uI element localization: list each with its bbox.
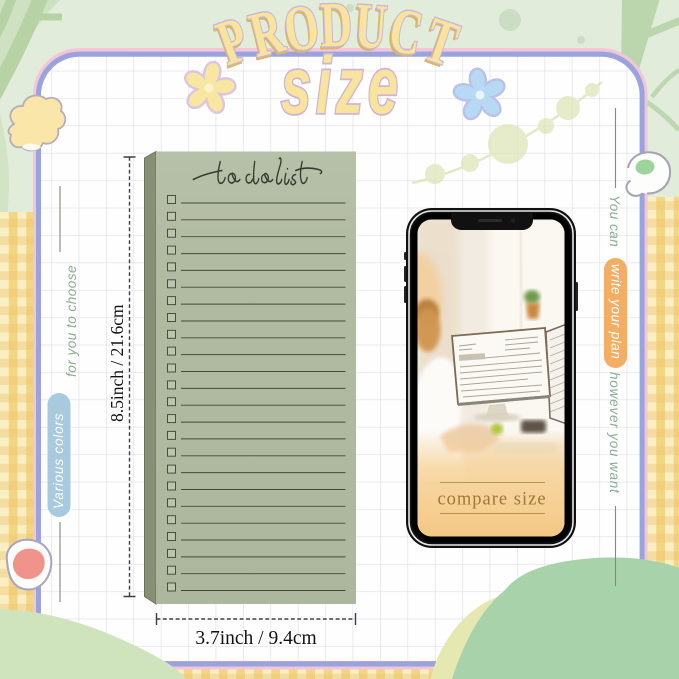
- svg-text:8.5inch / 21.6cm: 8.5inch / 21.6cm: [107, 304, 127, 422]
- svg-text:size: size: [281, 40, 403, 131]
- svg-text:You can: You can: [607, 195, 622, 247]
- svg-text:Various colors: Various colors: [51, 413, 66, 509]
- svg-text:for you to choose: for you to choose: [64, 265, 79, 377]
- svg-text:however you want: however you want: [607, 372, 622, 494]
- svg-text:compare size: compare size: [437, 490, 546, 510]
- svg-text:write your plan: write your plan: [609, 264, 624, 359]
- svg-text:3.7inch / 9.4cm: 3.7inch / 9.4cm: [195, 628, 316, 649]
